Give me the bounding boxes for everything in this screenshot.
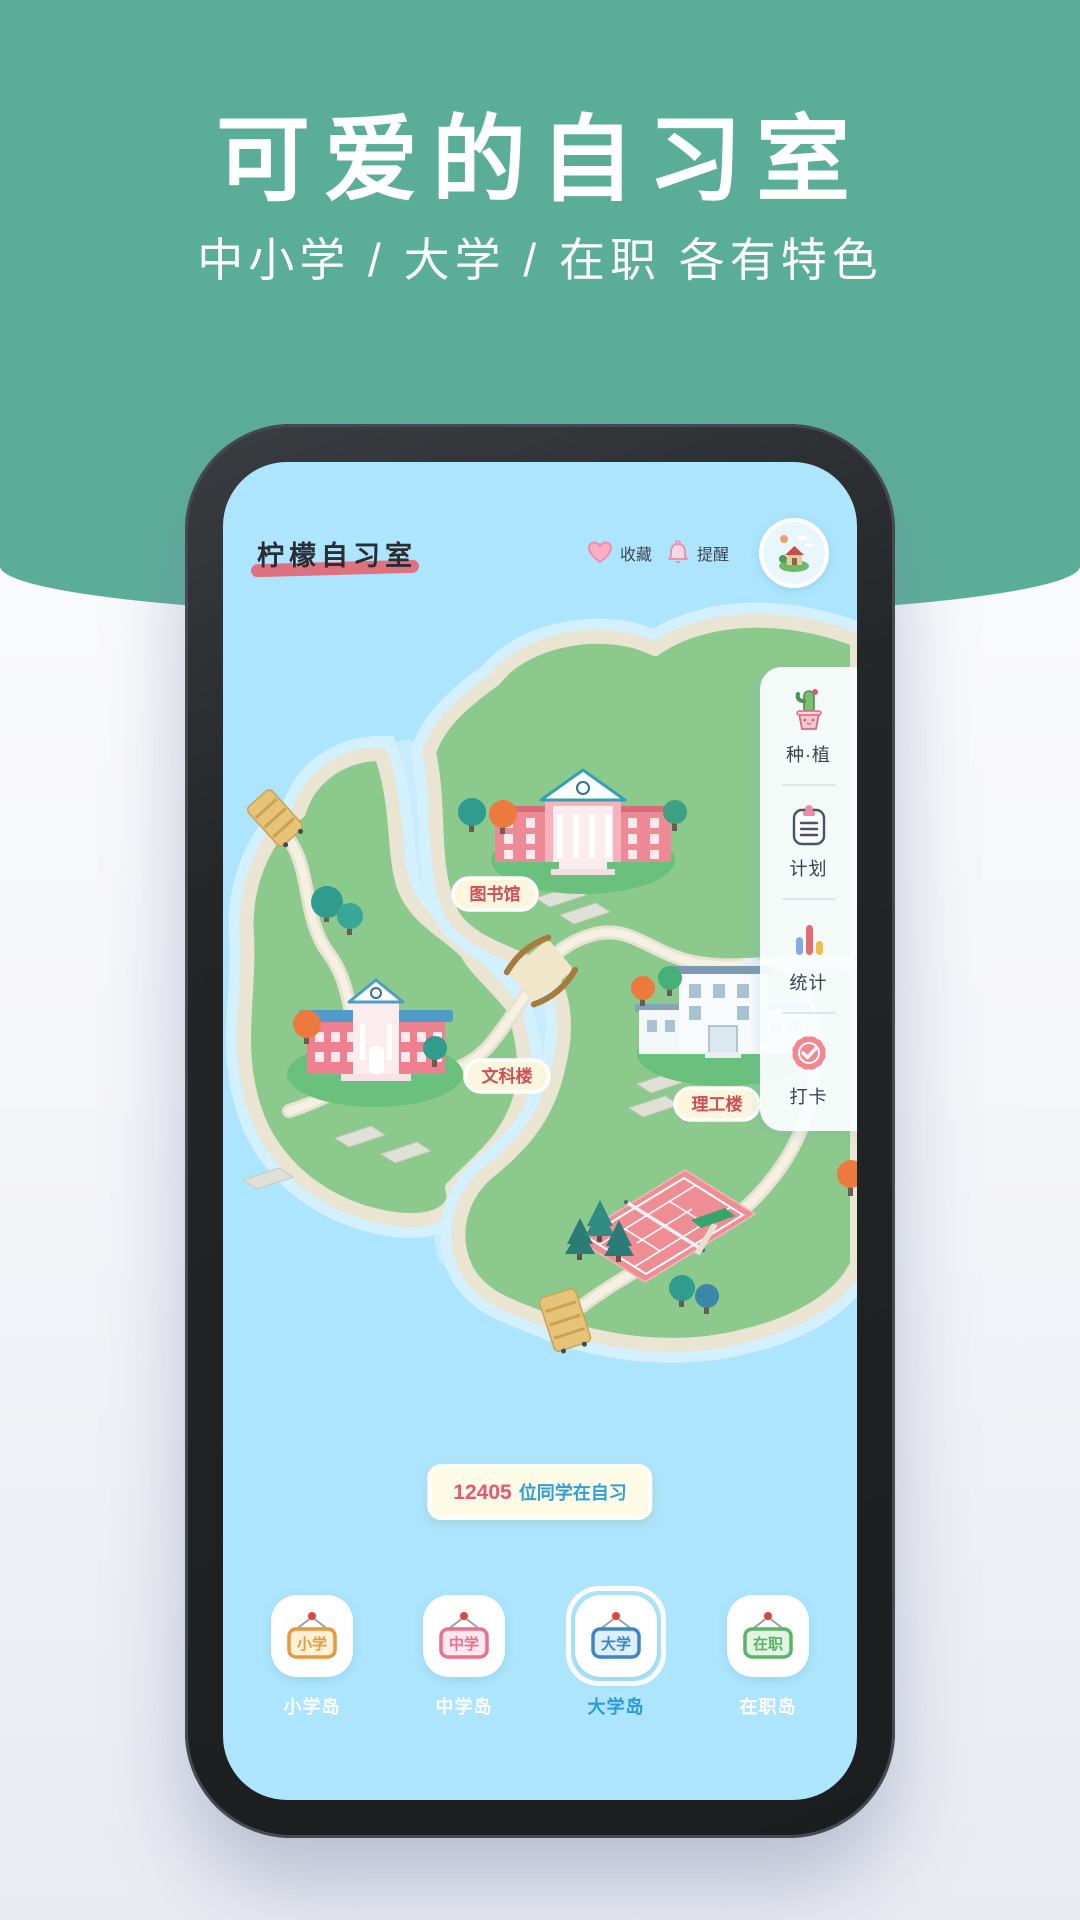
favorite-button[interactable]: 收藏	[587, 541, 652, 565]
divider	[782, 784, 836, 786]
app-logo-text: 柠檬自习室	[257, 541, 417, 572]
svg-text:图书馆: 图书馆	[470, 884, 521, 904]
tool-plan[interactable]: 计划	[789, 803, 829, 881]
svg-text:理工楼: 理工楼	[692, 1094, 743, 1114]
tool-stats[interactable]: 统计	[789, 917, 829, 995]
tab-primary-island[interactable]: 小学 小学岛	[253, 1586, 371, 1719]
hero-subtitle: 中小学 / 大学 / 在职 各有特色	[0, 224, 1080, 290]
app-logo: 柠檬自习室	[257, 534, 417, 573]
university-sign-icon: 大学	[587, 1609, 645, 1663]
app-header: 柠檬自习室 收藏 提醒	[257, 518, 829, 588]
divider	[782, 898, 836, 900]
primary-sign-icon: 小学	[283, 1609, 341, 1663]
tab-working-island-label: 在职岛	[740, 1693, 797, 1719]
tab-university-island-label: 大学岛	[588, 1693, 645, 1719]
map-label-library[interactable]: 图书馆	[453, 878, 537, 910]
studying-text: 位同学在自习	[519, 1483, 627, 1503]
map-label-liberal-arts[interactable]: 文科楼	[465, 1060, 549, 1092]
clipboard-plan-icon	[789, 803, 829, 847]
cactus-plant-icon	[788, 687, 830, 733]
reminder-label: 提醒	[697, 541, 729, 565]
divider	[782, 1012, 836, 1014]
avatar[interactable]	[759, 518, 829, 588]
tab-working-island[interactable]: 在职 在职岛	[709, 1586, 827, 1719]
island-tabbar: 小学 小学岛 中学 中学岛	[223, 1586, 857, 1719]
house-island-avatar-icon	[770, 529, 818, 577]
map-label-science[interactable]: 理工楼	[675, 1088, 759, 1120]
tool-checkin[interactable]: 打卡	[787, 1031, 831, 1109]
svg-text:中学: 中学	[449, 1635, 479, 1653]
reminder-button[interactable]: 提醒	[666, 540, 729, 566]
svg-text:文科楼: 文科楼	[482, 1066, 533, 1086]
tab-middle-island[interactable]: 中学 中学岛	[405, 1586, 523, 1719]
svg-text:在职: 在职	[753, 1635, 783, 1653]
studying-count-banner: 12405位同学在自习	[427, 1464, 652, 1520]
favorite-label: 收藏	[620, 541, 652, 565]
heart-icon	[587, 541, 613, 565]
svg-text:大学: 大学	[601, 1635, 631, 1653]
studying-count: 12405	[453, 1481, 511, 1504]
tab-university-island[interactable]: 大学 大学岛	[557, 1586, 675, 1719]
tool-stats-label: 统计	[790, 969, 828, 995]
bell-icon	[666, 540, 690, 566]
tool-plant[interactable]: 种·植	[786, 687, 831, 767]
hero-title: 可爱的自习室	[0, 84, 1080, 220]
tab-middle-island-label: 中学岛	[436, 1693, 493, 1719]
svg-text:小学: 小学	[297, 1635, 327, 1653]
check-badge-icon	[787, 1031, 831, 1075]
bar-chart-icon	[789, 917, 829, 961]
tool-plant-label: 种·植	[786, 741, 831, 767]
tools-panel: 种·植 计划	[760, 667, 857, 1131]
phone-mockup: 图书馆 文科楼 理工楼 柠檬自习室 收藏	[185, 424, 895, 1838]
tab-primary-island-label: 小学岛	[284, 1693, 341, 1719]
tool-plan-label: 计划	[790, 855, 828, 881]
app-screen: 图书馆 文科楼 理工楼 柠檬自习室 收藏	[223, 462, 857, 1800]
tool-checkin-label: 打卡	[790, 1083, 828, 1109]
middle-sign-icon: 中学	[435, 1609, 493, 1663]
working-sign-icon: 在职	[739, 1609, 797, 1663]
